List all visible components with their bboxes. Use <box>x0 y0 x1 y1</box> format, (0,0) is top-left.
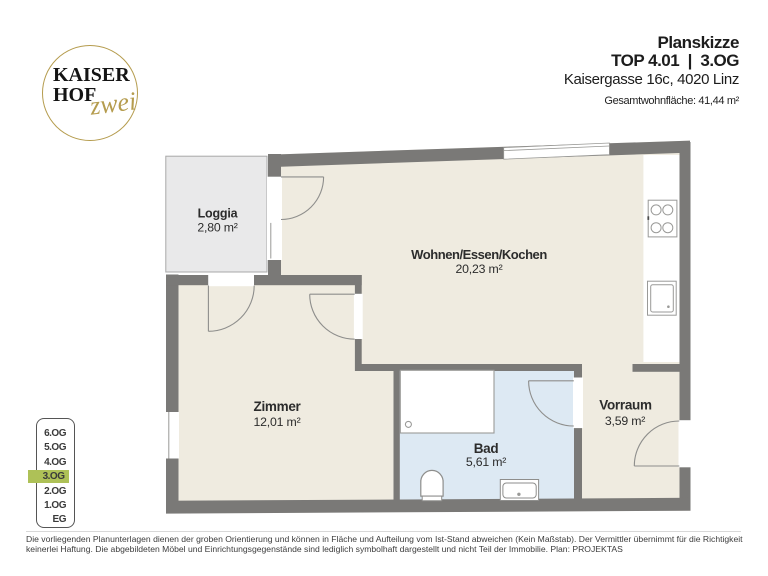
svg-text:3,59 m²: 3,59 m² <box>605 414 645 428</box>
svg-text:Wohnen/Essen/Kochen: Wohnen/Essen/Kochen <box>411 247 547 262</box>
svg-text:Bad: Bad <box>474 441 499 456</box>
svg-text:Zimmer: Zimmer <box>254 399 302 414</box>
svg-text:5,61 m²: 5,61 m² <box>466 455 506 469</box>
svg-text:12,01 m²: 12,01 m² <box>254 415 301 429</box>
svg-text:Loggia: Loggia <box>198 207 239 221</box>
svg-text:Vorraum: Vorraum <box>599 398 652 413</box>
svg-text:20,23 m²: 20,23 m² <box>456 262 503 276</box>
svg-text:2,80 m²: 2,80 m² <box>197 221 237 235</box>
